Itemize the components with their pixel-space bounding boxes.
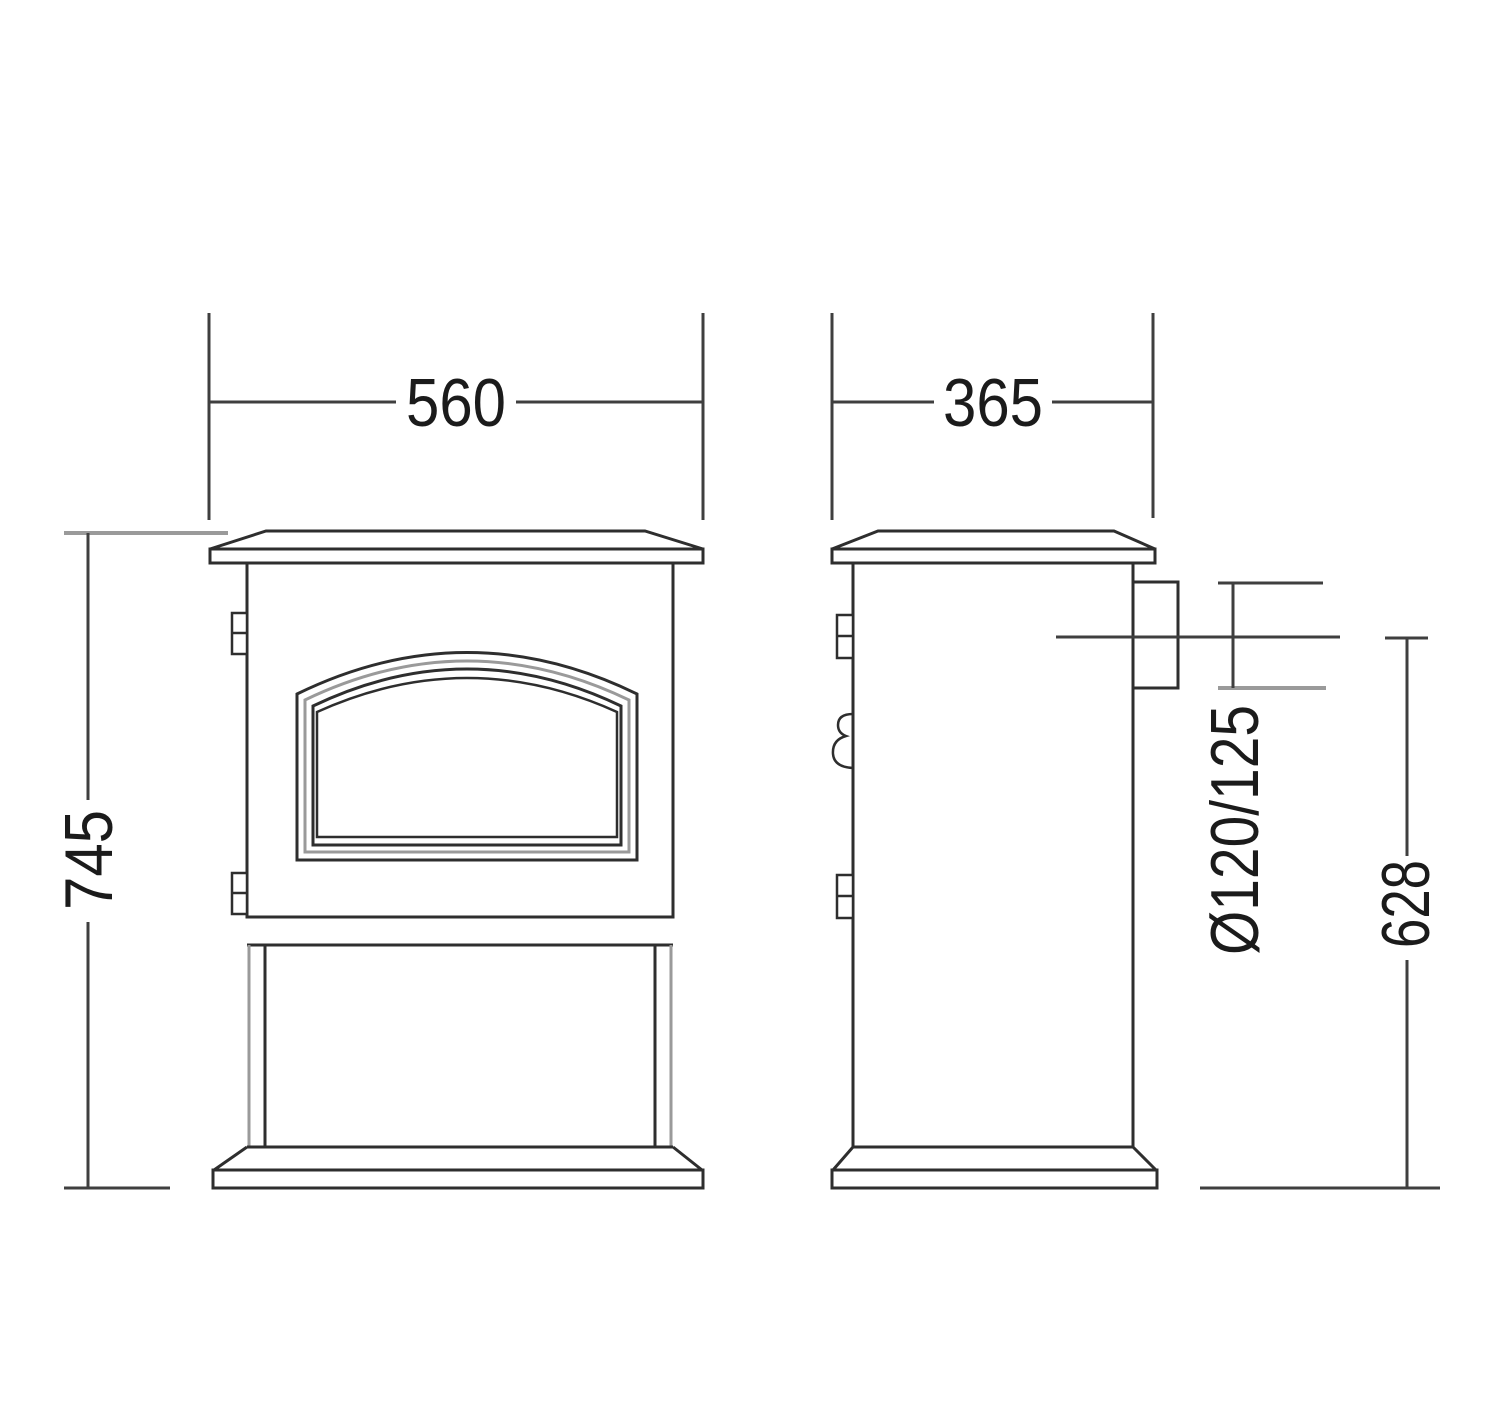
front-hinge-bottom [232,873,247,914]
dim-560-label: 560 [406,365,506,441]
dim-flue-label: Ø120/125 [1197,705,1273,955]
stove-dimension-drawing: 560 365 745 [0,0,1500,1427]
side-base [832,1147,1157,1188]
dim-628-label: 628 [1368,860,1444,948]
front-body [247,563,673,917]
side-hinge-bottom [837,875,853,918]
dim-745-label: 745 [51,810,127,910]
front-hinge-top [232,613,247,654]
front-base-flare-left [214,1147,247,1170]
door-handle [833,714,853,768]
front-log-store [247,945,673,1147]
front-top-plate-surface [210,531,703,549]
drawing-canvas: 560 365 745 [0,0,1500,1427]
flue-outlet-spigot [1133,582,1178,688]
side-hinge-top [837,615,853,658]
side-body [853,563,1133,1147]
dim-365-label: 365 [943,365,1043,441]
dimension-front-width: 560 [209,313,703,520]
side-top-plate-edge [832,549,1155,563]
front-elevation [210,531,703,1188]
side-top-plate-surface [832,531,1155,549]
side-base-flare-right [1133,1147,1156,1170]
side-elevation [832,531,1178,1188]
front-base-flare-right [673,1147,702,1170]
front-base [213,1147,703,1188]
dimension-overall-height: 745 [51,533,228,1188]
front-base-plinth [213,1170,703,1188]
front-top-plate-edge [210,549,703,563]
side-base-plinth [832,1170,1157,1188]
dimension-side-depth: 365 [832,313,1153,520]
side-base-flare-left [833,1147,853,1170]
